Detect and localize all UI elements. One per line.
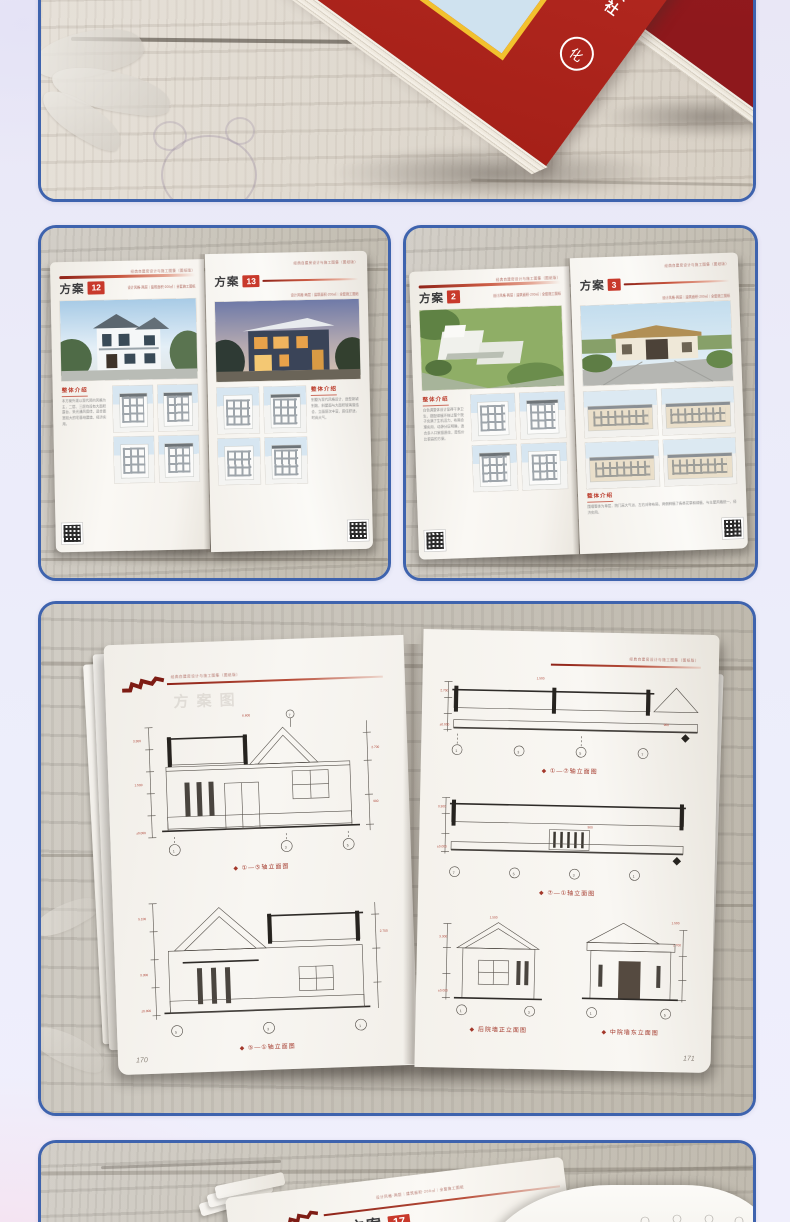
svg-text:1.500: 1.500 (537, 676, 545, 680)
header-rule (263, 278, 359, 283)
elevation-thumbnail (472, 444, 518, 492)
page-plan-13: 经典自建房设计与施工图集（图纸版） 方案 13 设计风格·两层｜建筑面积·200… (205, 251, 373, 552)
svg-text:1: 1 (590, 1012, 592, 1016)
svg-text:5: 5 (664, 1013, 666, 1017)
svg-text:5: 5 (579, 752, 581, 756)
photo-panel-book-cover[interactable]: 销售分类 化学工业出版社 化 (38, 0, 756, 202)
running-head: 经典自建房设计与施工图集（图纸版） (214, 260, 358, 268)
svg-text:900: 900 (587, 825, 593, 829)
svg-text:1.500: 1.500 (490, 915, 498, 919)
wall-elevation-thumbnail (661, 387, 735, 436)
page-171: 经典自建房设计与施工图集（图纸版） 2.700 ±0.000 1.500 (414, 629, 719, 1073)
courtyard-wall-drawing-d: 1.500 2.700 1 5 (571, 912, 691, 1024)
plan-meta: 设计风格·两层｜建筑面积·200㎡｜全套施工图纸 (215, 291, 359, 299)
svg-text:900: 900 (664, 723, 670, 727)
wall-elevation-drawing-b: 3.300 ±0.000 900 7 (436, 787, 700, 888)
svg-text:1: 1 (633, 875, 635, 879)
page-plan-3: 经典自建房设计与施工图集（图纸版） 方案 3 设计风格·两层｜建筑面积·200㎡… (570, 252, 748, 554)
elevation-thumbnail (158, 384, 199, 431)
drawing-caption: ◆ ⑤—①轴立面图 (142, 1037, 394, 1055)
intro-text: 围墙整体为单层，院门高大气派，左右对称布局，两侧种植了各类花草和绿植，与主屋风格… (587, 500, 737, 517)
svg-text:3: 3 (285, 846, 287, 850)
svg-text:1: 1 (359, 1024, 361, 1028)
publisher-logo-icon: 化 (553, 30, 600, 77)
intro-title: 整体介绍 (311, 385, 337, 396)
photo-panel-drawings-spread[interactable]: 经典自建房设计与施工图集（图纸版） 方案图 3.300 1.500 ±0.000… (38, 601, 756, 1116)
open-book: 经典自建房设计与施工图集（图纸版） 方案 12 设计风格·两层｜建筑面积·200… (50, 251, 376, 560)
intro-title: 整体介绍 (422, 395, 448, 406)
intro-block: 整体介绍 围墙整体为单层，院门高大气派，左右对称布局，两侧种植了各类花草和绿植，… (587, 488, 738, 517)
page-170: 经典自建房设计与施工图集（图纸版） 方案图 3.300 1.500 ±0.000… (104, 635, 419, 1075)
svg-text:7: 7 (641, 753, 643, 757)
open-book: 经典自建房设计与施工图集（图纸版） 方案 2 设计风格·两层｜建筑面积·200㎡… (409, 252, 751, 565)
running-head: 经典自建房设计与施工图集（图纸版） (629, 657, 699, 663)
svg-text:6.600: 6.600 (242, 713, 250, 717)
elevation-thumbnail (264, 386, 307, 433)
intro-block: 整体介绍 别墅为现代风格设计，造型新颖别致，斜屋面与大面积玻璃窗结合，立面层次丰… (311, 385, 363, 483)
svg-text:3: 3 (517, 750, 519, 754)
qr-code (426, 532, 444, 550)
aerial-rendering-photo (419, 305, 564, 390)
page-number-left: 170 (136, 1057, 148, 1064)
gate-rendering-photo (580, 301, 733, 386)
intro-text: 白色调整体设计显得干净卫生，搭配绿植环绕让整个院子充满了生机活力，布局合理实用，… (423, 407, 467, 443)
elevation-thumbnail (521, 442, 567, 490)
svg-text:3.300: 3.300 (140, 973, 148, 977)
running-head-rule (551, 664, 701, 669)
svg-text:1: 1 (460, 1009, 462, 1013)
svg-text:±0.000: ±0.000 (437, 844, 447, 848)
intro-text: 别墅为现代风格设计，造型新颖别致，斜屋面与大面积玻璃窗结合，立面层次丰富，居住舒… (311, 397, 361, 421)
wall-elevation-thumbnail (663, 438, 737, 487)
wall-elevation-thumbnail (583, 389, 657, 438)
svg-text:2.700: 2.700 (440, 688, 448, 692)
elevation-thumbnail (114, 436, 155, 483)
svg-text:3: 3 (528, 1011, 530, 1015)
intro-text: 本方案外观以现代简约风格为主，二层、三层均设有大面积露台，采光通风俱佳，适合面宽… (62, 398, 109, 428)
book-shadow (331, 145, 661, 201)
elevation-drawing-5-1: 5.100 3.300 ±0.000 2.700 (136, 882, 393, 1041)
plan-meta: 设计风格·两层｜建筑面积·200㎡｜全套施工图纸 (108, 283, 196, 290)
page-number-right: 171 (683, 1055, 695, 1062)
svg-text:2.700: 2.700 (380, 929, 388, 933)
chapter-zigzag-mark (279, 1209, 320, 1222)
photo-panel-spread-12-13[interactable]: 经典自建房设计与施工图集（图纸版） 方案 12 设计风格·两层｜建筑面积·200… (38, 225, 391, 581)
photo-panel-spread-2-3[interactable]: 经典自建房设计与施工图集（图纸版） 方案 2 设计风格·两层｜建筑面积·200㎡… (403, 225, 758, 581)
svg-text:3.300: 3.300 (438, 804, 446, 808)
svg-text:7: 7 (288, 713, 290, 717)
elevation-thumbnail (265, 437, 308, 484)
svg-text:2.700: 2.700 (673, 943, 681, 947)
plan-label: 方案 (579, 277, 605, 294)
svg-text:3: 3 (267, 1027, 269, 1031)
running-head: 经典自建房设计与施工图集（图纸版） (171, 673, 241, 680)
intro-block: 整体介绍 白色调整体设计显得干净卫生，搭配绿植环绕让整个院子充满了生机活力，布局… (422, 395, 468, 493)
product-detail-page: 销售分类 化学工业出版社 化 经典自建房设计与施工图集（图纸版） (0, 0, 790, 1222)
drawing-caption: ◆ 后院墙正立面图 (437, 1023, 559, 1035)
intro-block: 整体介绍 本方案外观以现代简约风格为主，二层、三层均设有大面积露台，采光通风俱佳… (62, 386, 110, 484)
chapter-zigzag-mark (121, 675, 166, 693)
svg-text:±0.000: ±0.000 (440, 722, 450, 726)
plan-label: 方案 (59, 280, 84, 297)
svg-text:1: 1 (173, 850, 175, 854)
qr-code (349, 522, 366, 539)
svg-text:2.700: 2.700 (371, 745, 379, 749)
svg-text:1.500: 1.500 (134, 783, 142, 787)
plan-number-badge: 2 (447, 291, 460, 304)
svg-text:3.300: 3.300 (133, 739, 141, 743)
svg-text:5: 5 (513, 872, 515, 876)
running-head: 经典自建房设计与施工图集（图纸版） (579, 262, 729, 272)
plan-number-badge: 17 (387, 1213, 411, 1222)
svg-text:±0.000: ±0.000 (136, 831, 146, 835)
svg-text:5: 5 (175, 1031, 177, 1035)
elevation-thumbnail (159, 435, 200, 482)
svg-text:7: 7 (453, 871, 455, 875)
svg-text:1.500: 1.500 (671, 921, 679, 925)
drawing-caption: ◆ 中院墙东立面图 (571, 1026, 689, 1037)
svg-text:3: 3 (573, 874, 575, 878)
page-plan-2: 经典自建房设计与施工图集（图纸版） 方案 2 设计风格·两层｜建筑面积·200㎡… (409, 266, 579, 559)
house-rendering-photo (215, 299, 361, 382)
faint-drawing-fragment (631, 1211, 751, 1222)
plan-label: 方案 (214, 273, 239, 290)
svg-text:±0.000: ±0.000 (438, 988, 448, 992)
elevation-thumbnail (113, 385, 154, 432)
plan-number-badge: 3 (607, 278, 620, 291)
photo-panel-plan-17[interactable]: 设计风格·两层｜建筑面积·200㎡｜全套施工图纸 方案 17 (38, 1140, 756, 1222)
elevation-thumbnail (217, 387, 260, 434)
wall-elevation-drawing-a: 2.700 ±0.000 1.500 900 1 3 5 7 (439, 669, 703, 766)
intro-title: 整体介绍 (62, 386, 88, 397)
courtyard-wall-drawing-c: 3.300 ±0.000 1.500 1 3 (437, 909, 561, 1022)
plan-label: 方案 (419, 289, 445, 306)
plan-number-badge: 13 (242, 275, 260, 288)
svg-text:1: 1 (455, 749, 457, 753)
elevation-thumbnail (218, 438, 261, 485)
wall-elevation-thumbnail (585, 440, 659, 489)
svg-text:5: 5 (347, 843, 349, 847)
page-plan-12: 经典自建房设计与施工图集（图纸版） 方案 12 设计风格·两层｜建筑面积·200… (50, 259, 210, 552)
drawing-caption: ◆ ①—⑤轴立面图 (135, 858, 387, 876)
qr-code (63, 525, 80, 542)
plan-meta: 设计风格·两层｜建筑面积·200㎡｜全套施工图纸 (463, 291, 561, 299)
intro-title: 整体介绍 (587, 492, 613, 503)
svg-text:3.300: 3.300 (439, 934, 447, 938)
header-rule (623, 279, 729, 285)
elevation-thumbnail (520, 391, 566, 439)
plan-label: 方案 (348, 1213, 384, 1222)
svg-text:±0.000: ±0.000 (141, 1009, 151, 1013)
qr-code (724, 519, 742, 537)
plan-number-badge: 12 (87, 282, 105, 295)
svg-text:5.100: 5.100 (138, 917, 146, 921)
elevation-thumbnail (470, 393, 516, 441)
svg-text:900: 900 (373, 799, 379, 803)
elevation-drawing-1-5: 3.300 1.500 ±0.000 2.700 900 6.600 (130, 702, 387, 861)
house-rendering-photo (60, 298, 198, 381)
